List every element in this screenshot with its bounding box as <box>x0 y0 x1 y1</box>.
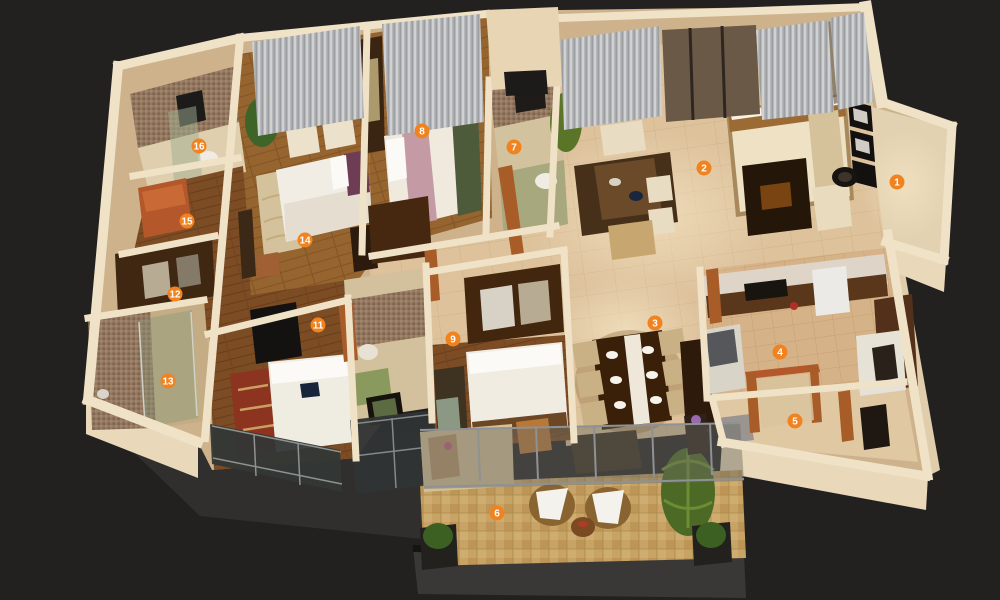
svg-text:6: 6 <box>494 509 500 520</box>
svg-text:16: 16 <box>193 142 205 153</box>
svg-text:1: 1 <box>894 178 900 189</box>
svg-text:8: 8 <box>419 127 425 138</box>
svg-text:12: 12 <box>169 290 181 301</box>
svg-text:3: 3 <box>652 319 658 330</box>
svg-text:7: 7 <box>511 143 517 154</box>
svg-text:15: 15 <box>181 217 193 228</box>
svg-text:2: 2 <box>701 164 707 175</box>
svg-text:11: 11 <box>313 321 324 332</box>
svg-text:14: 14 <box>299 236 311 247</box>
svg-text:13: 13 <box>162 377 174 388</box>
svg-text:5: 5 <box>792 417 798 428</box>
svg-text:9: 9 <box>450 335 456 346</box>
svg-text:4: 4 <box>777 348 783 359</box>
